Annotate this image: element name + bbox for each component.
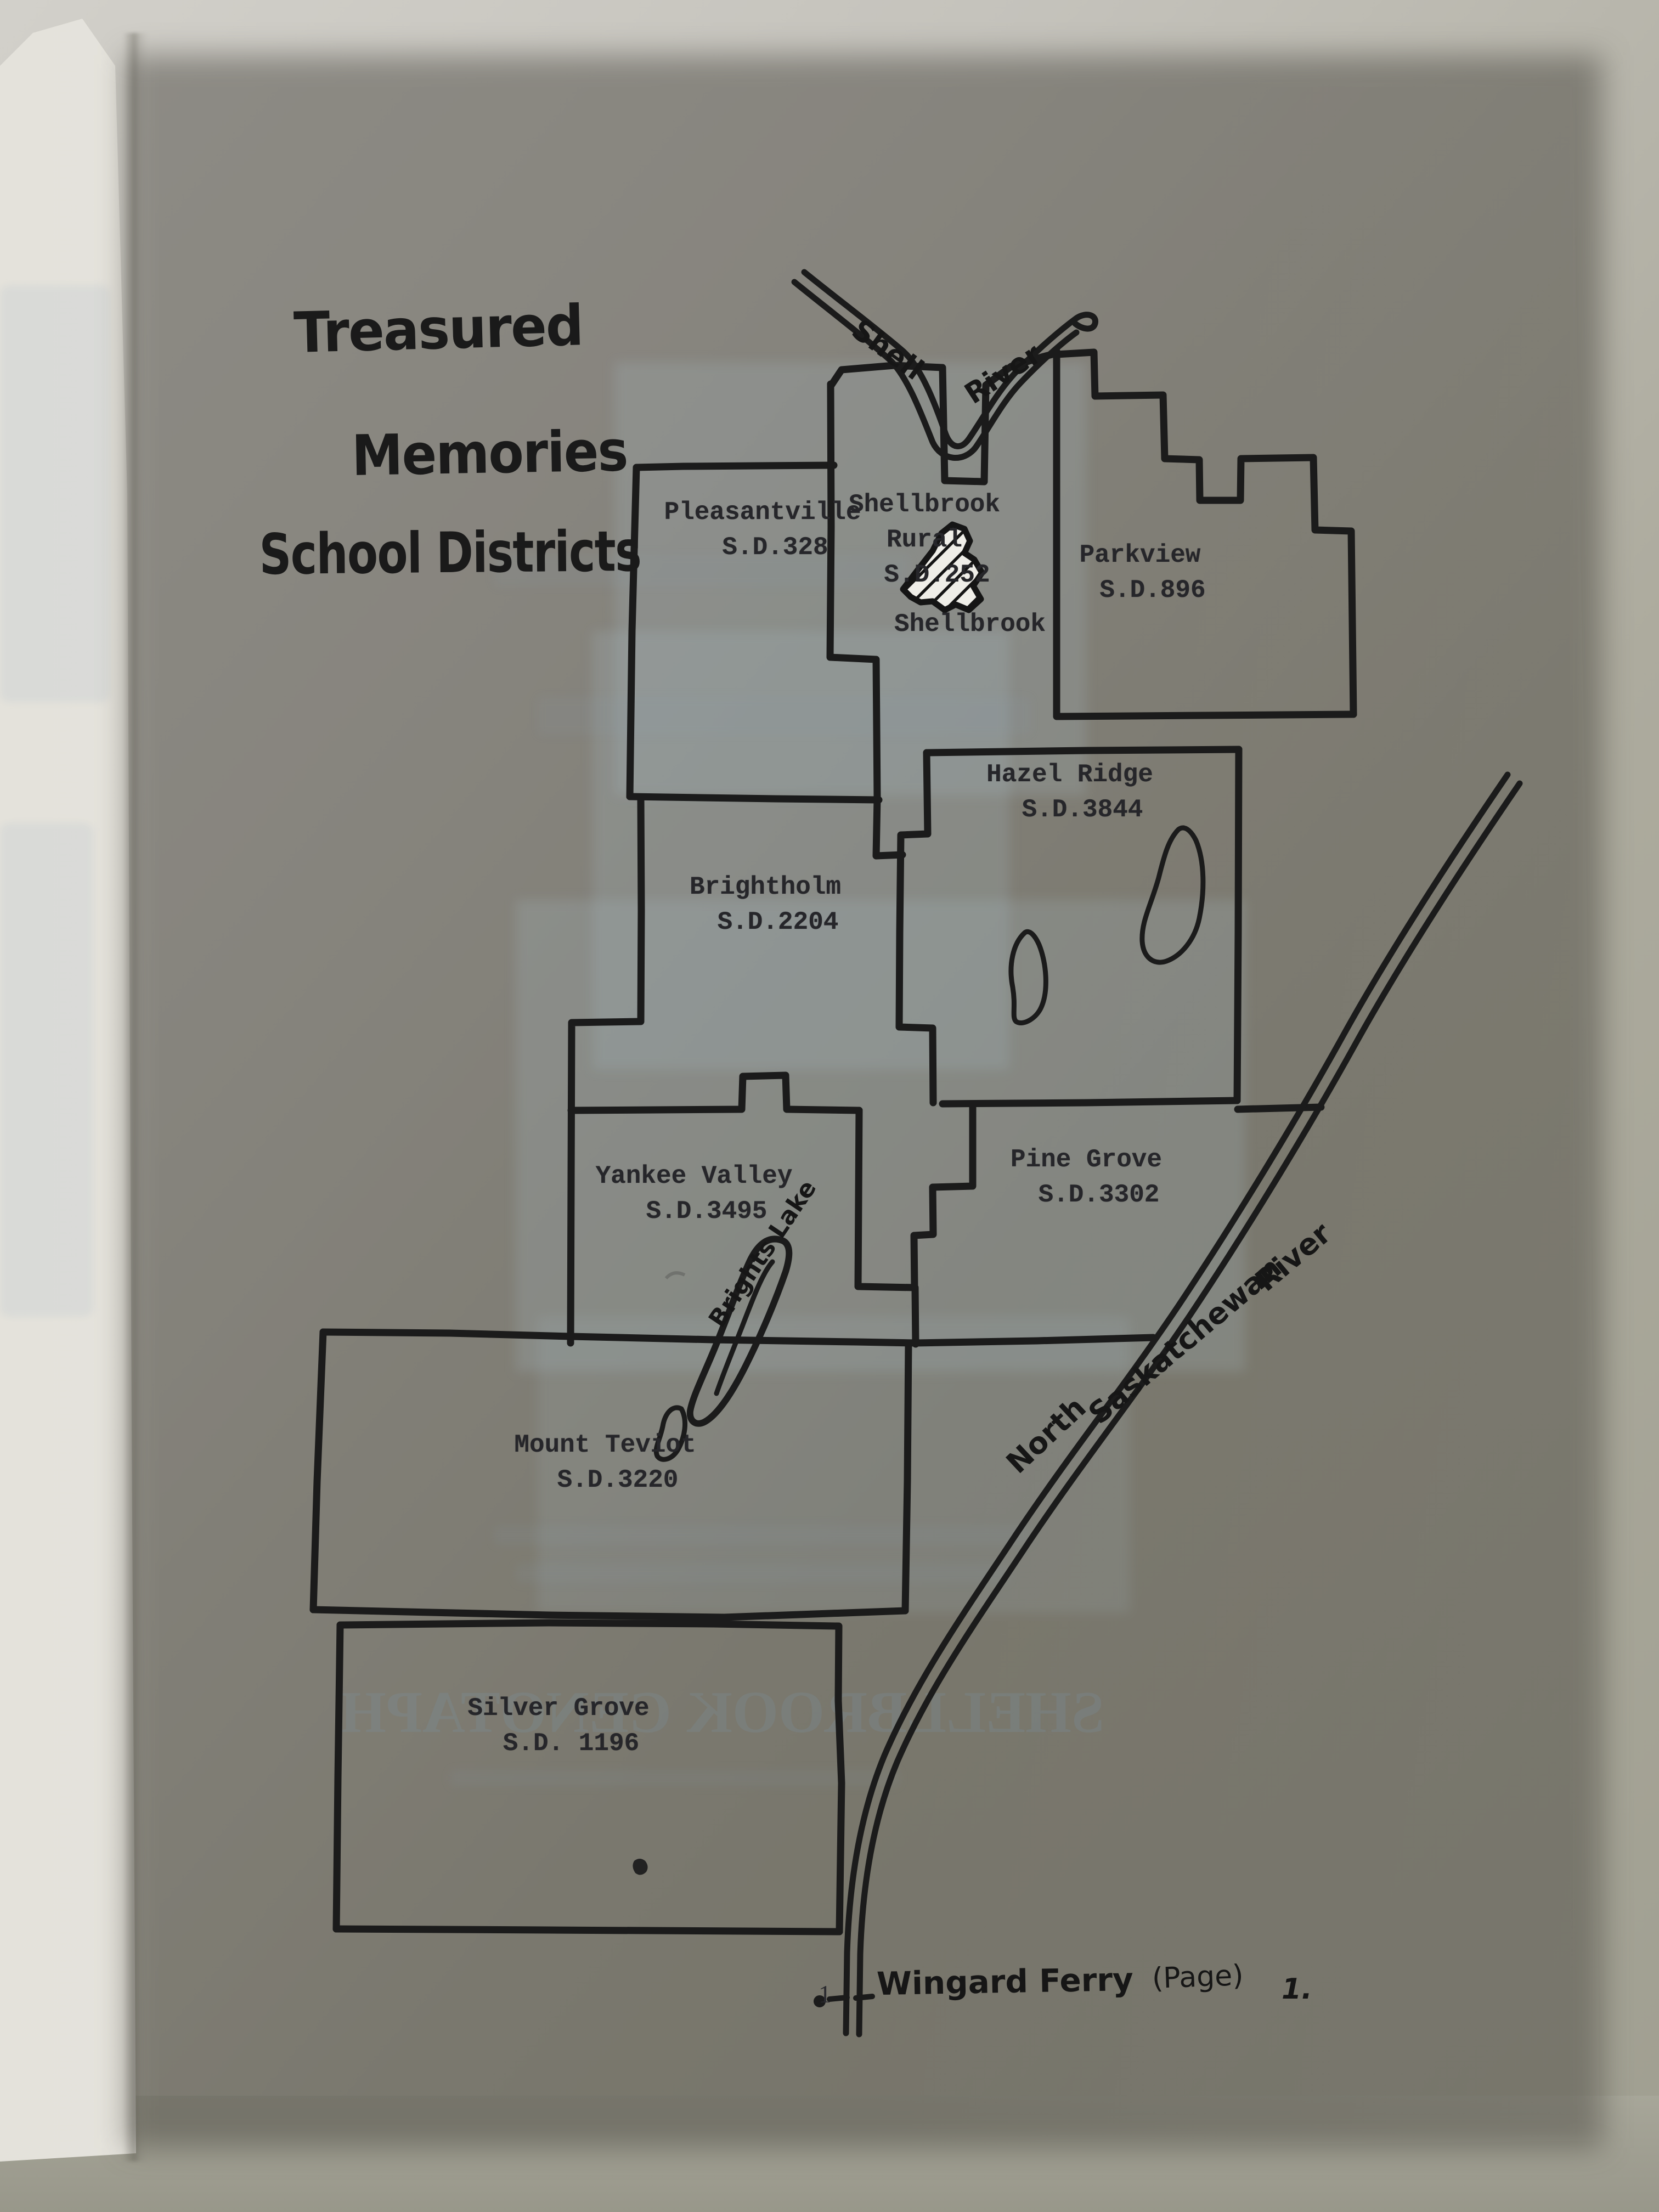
pen-smudge bbox=[666, 1273, 685, 1278]
district-label-parkview: Parkview S.D.896 bbox=[1025, 538, 1255, 608]
ink-dot bbox=[633, 1859, 647, 1875]
hazel-ridge-lakes bbox=[1011, 828, 1203, 1023]
north-saskatchewan-river bbox=[846, 775, 1520, 2034]
district-label-brightholm: Brightholm S.D.2204 bbox=[650, 870, 881, 940]
district-label-silver-grove: Silver Grove S.D. 1196 bbox=[443, 1691, 674, 1761]
district-label-hazel-ridge: Hazel Ridge S.D.3844 bbox=[955, 757, 1185, 827]
page-title-line-2: Memories bbox=[351, 419, 628, 489]
page-title-line-1: Treasured bbox=[293, 293, 584, 366]
ferry-page-ref: (Page) bbox=[1152, 1959, 1244, 1995]
page-title-line-3: School Districts bbox=[259, 519, 641, 588]
book-photo: SHELLBROOK CENOTAPH bbox=[0, 0, 1659, 2212]
ferry-page-ref-number: 1. bbox=[1282, 1973, 1312, 2006]
town-label-shellbrook: Shellbrook bbox=[888, 610, 1052, 639]
page-number: 1 bbox=[819, 1979, 831, 2008]
school-districts-map bbox=[0, 0, 1659, 2212]
district-label-pine-grove: Pine Grove S.D.3302 bbox=[971, 1142, 1201, 1212]
district-label-mount-teviot: Mount Teviot S.D.3220 bbox=[490, 1427, 720, 1498]
district-label-pleasantville: Pleasantville S.D.328 bbox=[647, 495, 878, 565]
wingard-ferry-label: Wingard Ferry bbox=[876, 1961, 1133, 2002]
